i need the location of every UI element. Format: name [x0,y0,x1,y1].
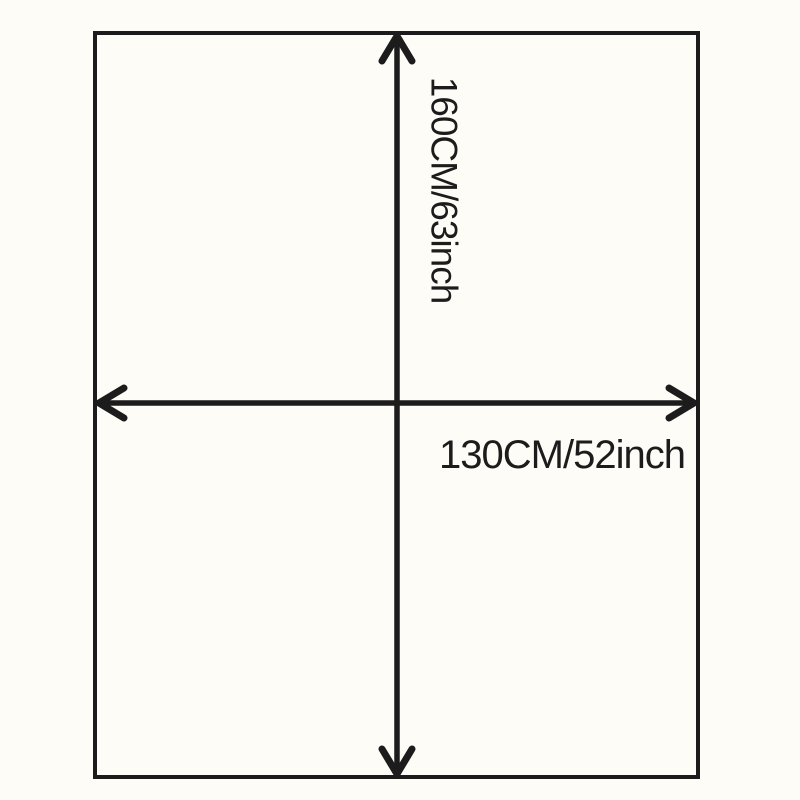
width-dimension-label: 130CM/52inch [439,433,685,477]
size-diagram: 160CM/63inch 130CM/52inch [0,0,800,800]
height-dimension-label: 160CM/63inch [424,77,465,304]
page-background [0,0,800,800]
size-diagram-svg: 160CM/63inch 130CM/52inch [0,0,800,800]
